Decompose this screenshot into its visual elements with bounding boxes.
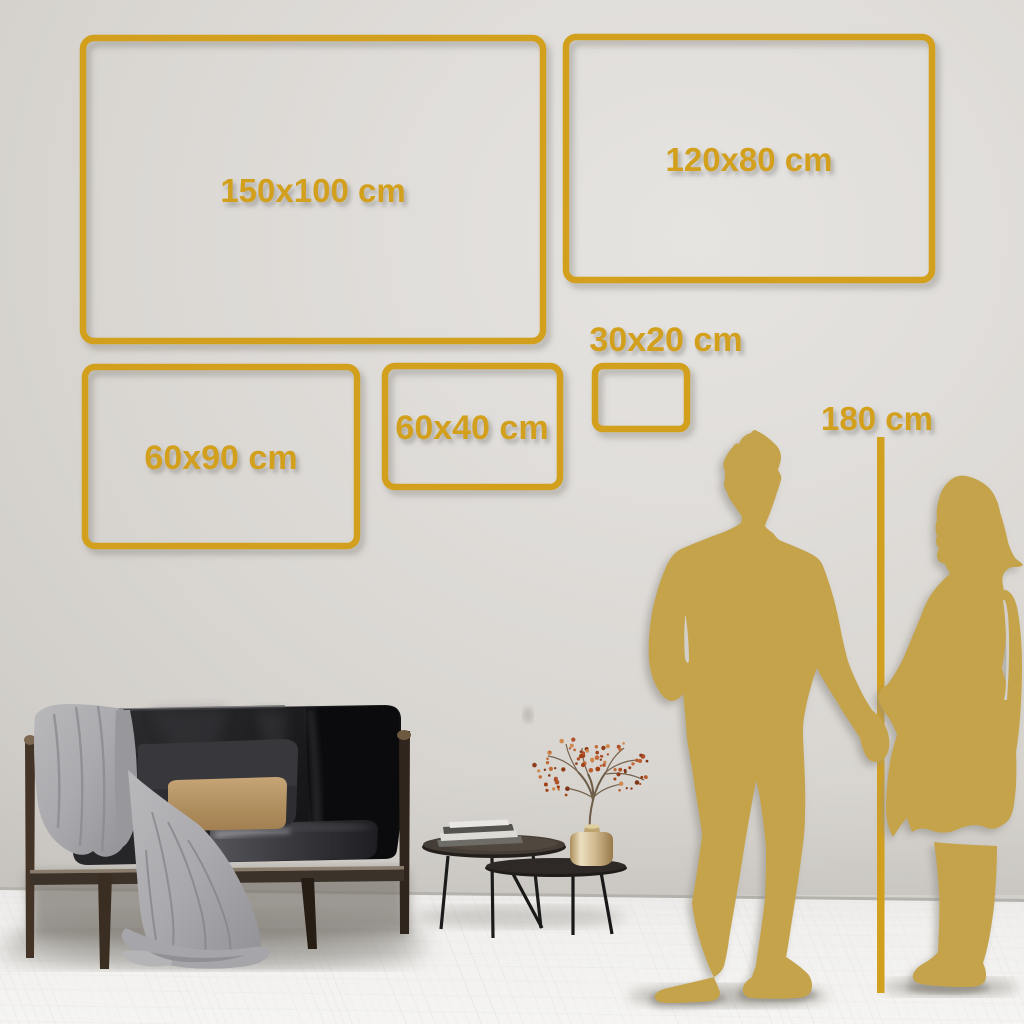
svg-text:60x90 cm: 60x90 cm — [144, 439, 297, 477]
svg-text:180 cm: 180 cm — [821, 400, 933, 437]
svg-text:120x80 cm: 120x80 cm — [666, 141, 833, 178]
svg-text:150x100 cm: 150x100 cm — [220, 172, 405, 209]
svg-text:60x40 cm: 60x40 cm — [395, 409, 548, 447]
svg-text:30x20 cm: 30x20 cm — [589, 321, 742, 359]
